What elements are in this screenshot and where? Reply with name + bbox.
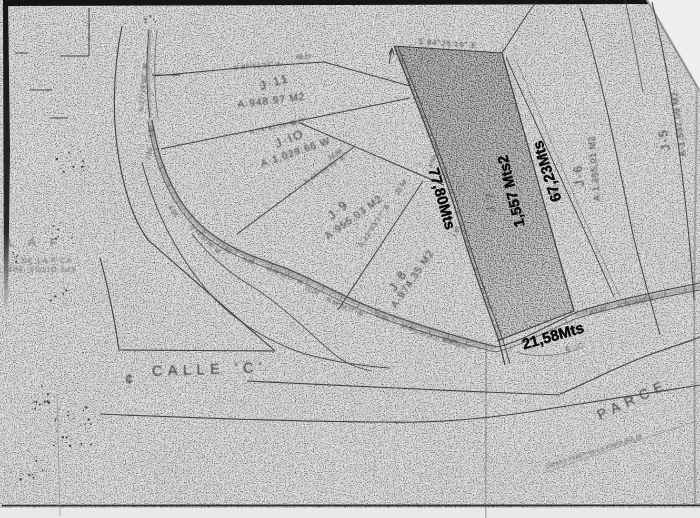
svg-text:486 -FOLIO 343: 486 -FOLIO 343 (8, 265, 76, 274)
svg-text:49.27: 49.27 (296, 55, 312, 61)
svg-text:J-6: J-6 (570, 163, 587, 187)
svg-text:·I DE LA F·CA: ·I DE LA F·CA (12, 256, 73, 265)
svg-text:L A F: L A F (8, 237, 63, 249)
svg-text:J·7: J·7 (484, 191, 498, 213)
svg-text:¢: ¢ (125, 371, 133, 388)
